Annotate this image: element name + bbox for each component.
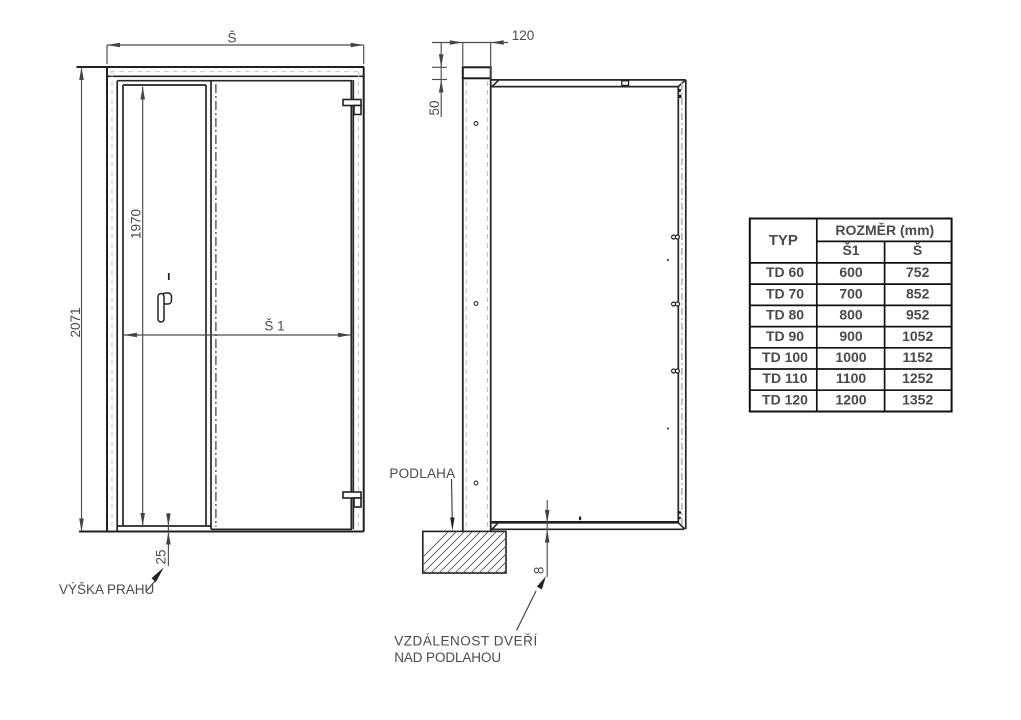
svg-text:600: 600 [839, 264, 863, 280]
svg-text:Š: Š [227, 31, 236, 46]
svg-text:1970: 1970 [129, 209, 144, 239]
svg-text:1100: 1100 [836, 370, 867, 386]
svg-text:952: 952 [906, 307, 930, 323]
svg-text:PODLAHA: PODLAHA [389, 466, 455, 481]
svg-text:2071: 2071 [68, 307, 83, 337]
svg-text:1200: 1200 [835, 391, 866, 407]
svg-text:ROZMĚR (mm): ROZMĚR (mm) [835, 221, 934, 238]
svg-text:TD 60: TD 60 [766, 264, 804, 280]
svg-text:1052: 1052 [902, 328, 933, 344]
svg-text:800: 800 [839, 307, 863, 323]
svg-text:1352: 1352 [902, 391, 933, 407]
svg-text:TD 100: TD 100 [762, 349, 808, 365]
svg-text:TYP: TYP [769, 232, 798, 249]
svg-text:900: 900 [839, 328, 863, 344]
svg-text:TD 70: TD 70 [766, 285, 804, 301]
svg-text:TD 80: TD 80 [766, 307, 804, 323]
svg-text:120: 120 [512, 28, 535, 43]
svg-text:TD 90: TD 90 [766, 328, 804, 344]
svg-text:NAD PODLAHOU: NAD PODLAHOU [394, 650, 501, 665]
svg-text:Š1: Š1 [842, 241, 859, 258]
svg-text:TD 110: TD 110 [762, 370, 807, 386]
svg-text:25: 25 [154, 549, 169, 564]
svg-text:Š 1: Š 1 [264, 319, 284, 334]
svg-text:1000: 1000 [835, 349, 866, 365]
svg-text:Š: Š [913, 241, 922, 258]
svg-text:1252: 1252 [902, 370, 933, 386]
svg-text:TD 120: TD 120 [762, 391, 808, 407]
svg-text:VZDÁLENOST DVEŘÍ: VZDÁLENOST DVEŘÍ [394, 634, 538, 649]
svg-text:VÝŠKA PRAHU: VÝŠKA PRAHU [59, 582, 154, 597]
svg-text:700: 700 [839, 285, 863, 301]
svg-text:50: 50 [427, 100, 442, 115]
svg-text:852: 852 [906, 285, 930, 301]
svg-text:752: 752 [906, 264, 930, 280]
svg-text:1152: 1152 [903, 349, 934, 365]
svg-text:8: 8 [531, 567, 546, 575]
